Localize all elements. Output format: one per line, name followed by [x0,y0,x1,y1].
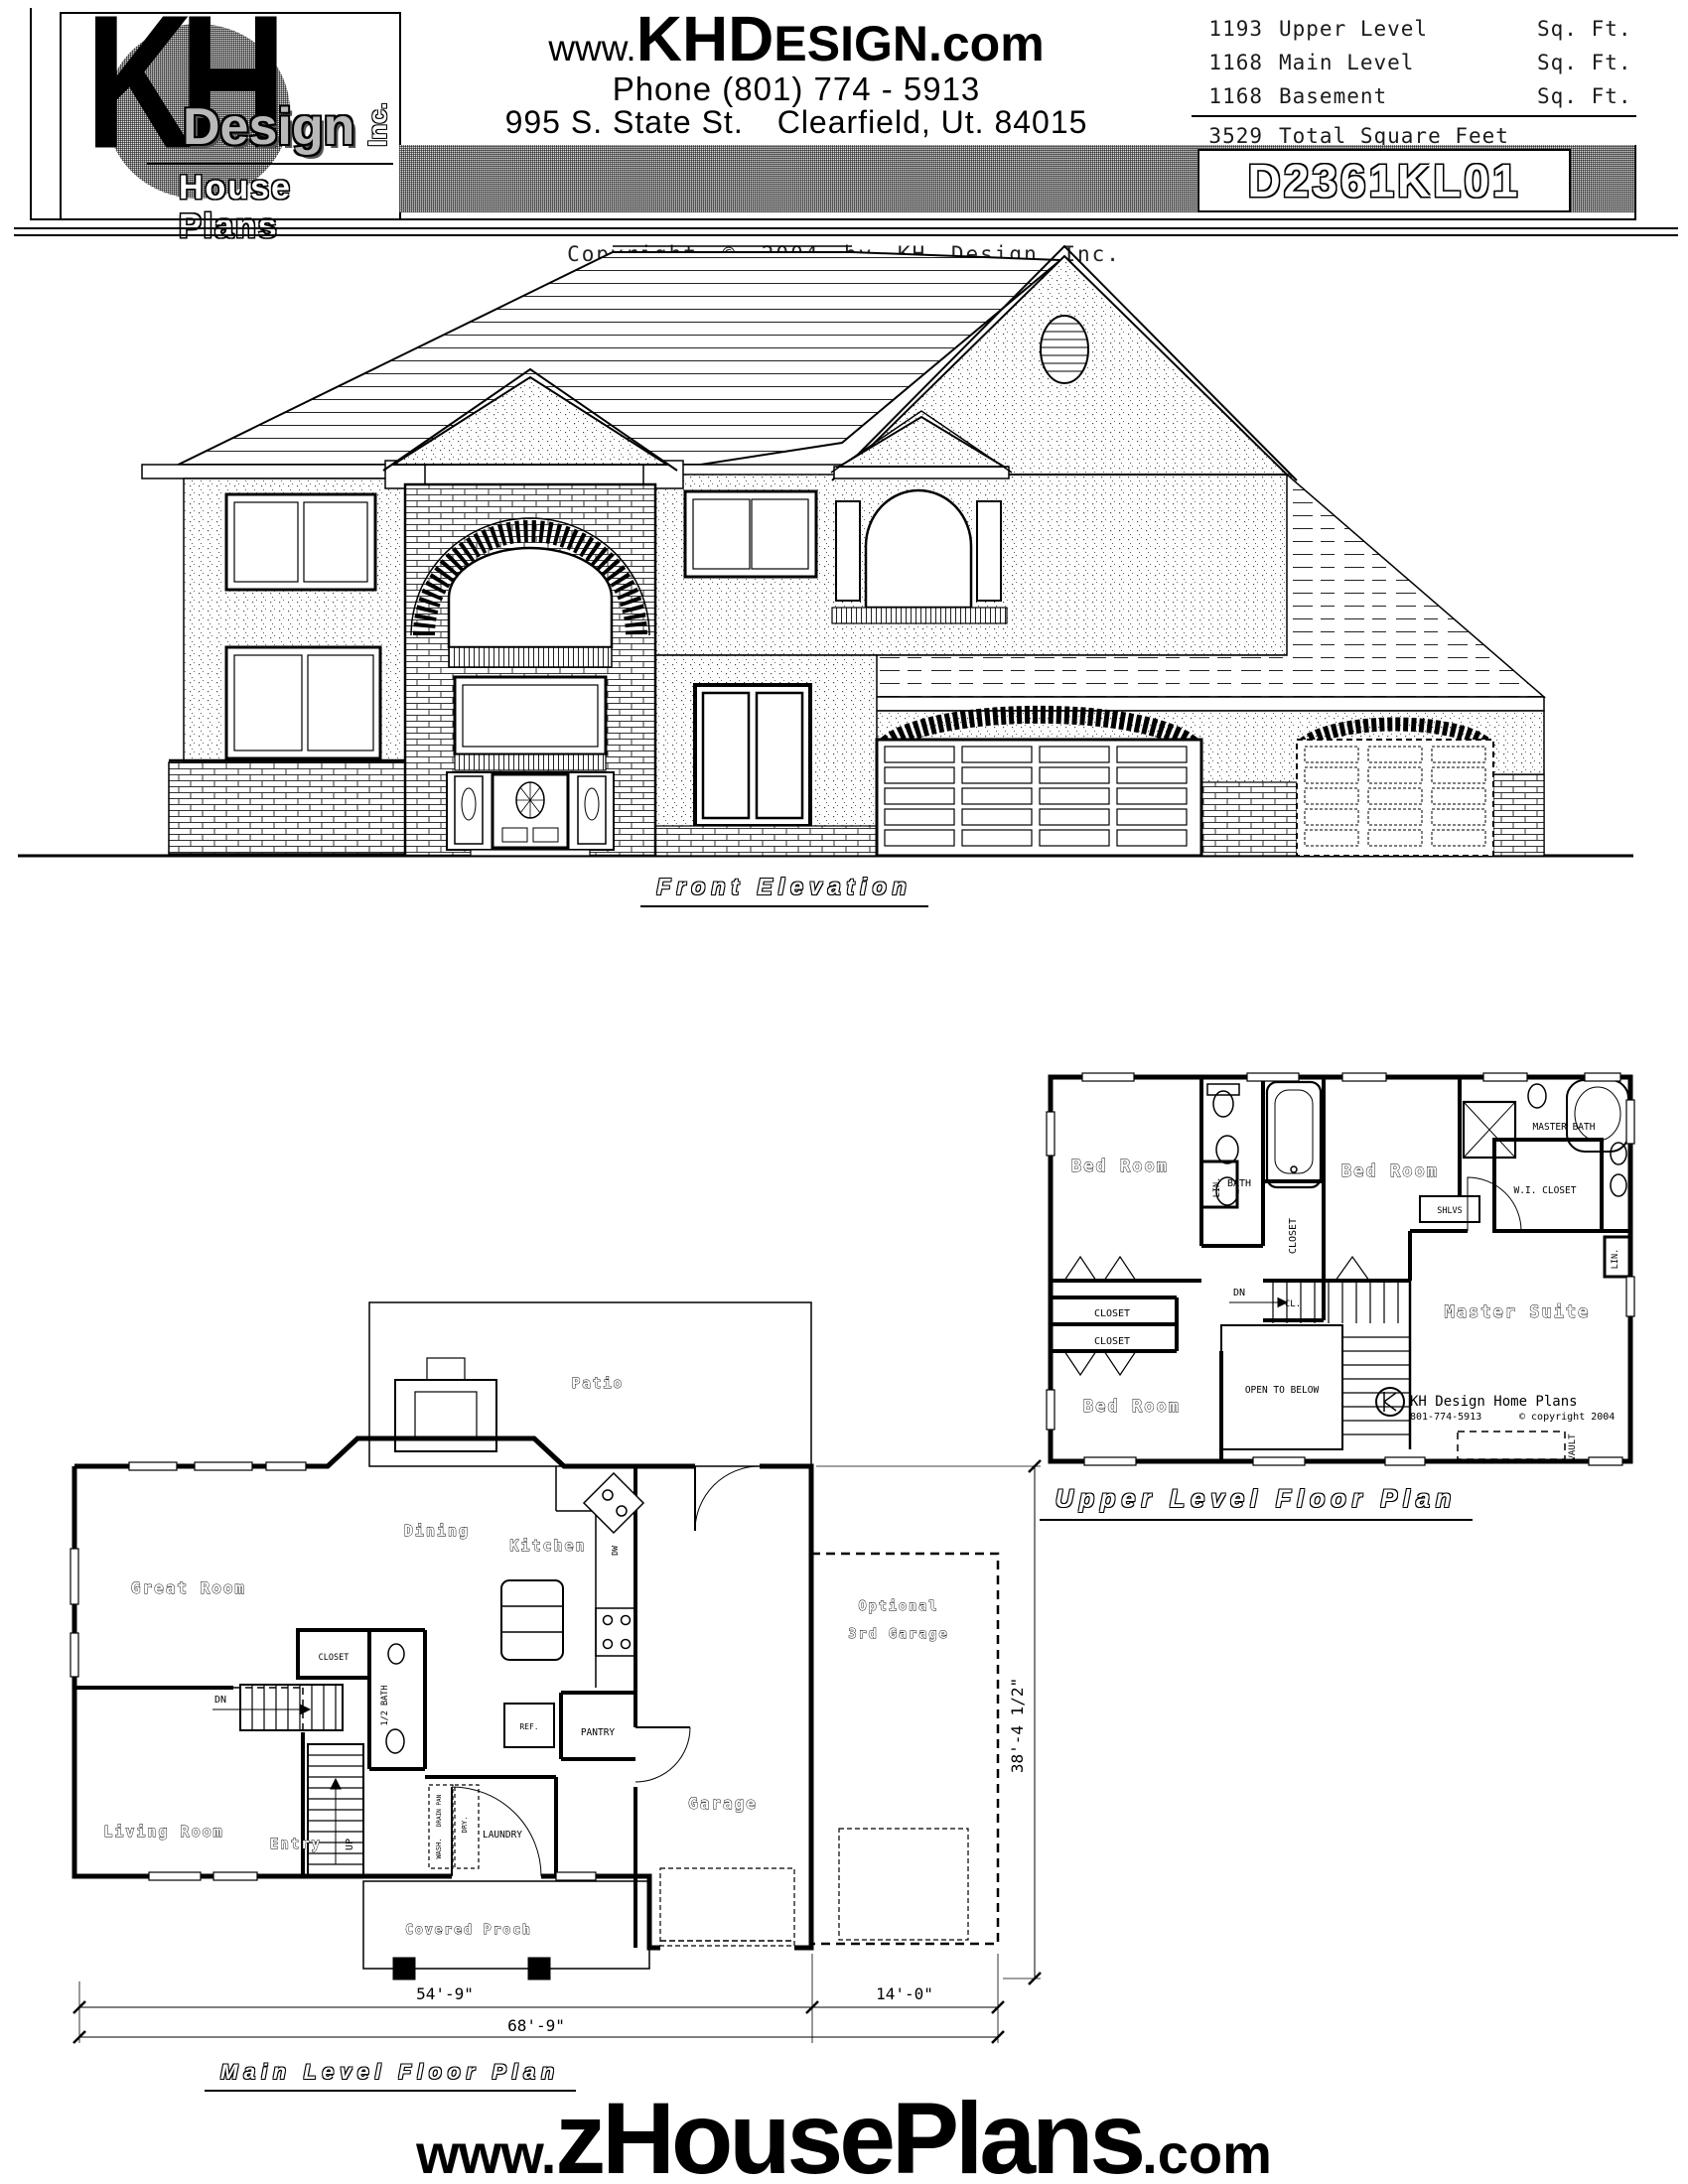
master-bath-fixtures [1420,1080,1630,1277]
room-label-cl: CL. [1285,1299,1301,1309]
footer-watermark: www.zHousePlans.com [0,2081,1688,2184]
footer-www: www. [416,2122,555,2184]
garage-door-zone [660,1868,794,1946]
arch-window [449,548,612,647]
dim-depth: 38'-4 1/2" [1008,1678,1027,1773]
room-label-master-suite: Master Suite [1445,1302,1591,1322]
room-label-shlvs: SHLVS [1437,1206,1463,1216]
porch-post [528,1958,550,1979]
open-to-below-label: OPEN TO BELOW [1245,1385,1320,1396]
upper-level-floor-plan: Bed Room Bed Room Bed Room Master Suite … [1033,1008,1638,1469]
footer-com: .com [1142,2122,1272,2184]
upper-left-window [226,494,375,590]
square-footage-table: 1193 Upper Level Sq. Ft. 1168 Main Level… [1192,12,1636,153]
elevation-caption: Front Elevation [640,874,927,907]
room-label-patio: Patio [572,1376,624,1392]
stairs-up [308,1744,363,1876]
stairs-up-label: UP [345,1839,355,1850]
room-label-optional-1: Optional [858,1598,938,1614]
label-wash: WASH. [435,1838,443,1858]
upper-caption-wrap: Upper Level Floor Plan [1033,1485,1479,1521]
logo-design-word: Design [183,97,354,157]
tower-mid-window [455,677,606,754]
label-dw: DW [611,1546,620,1556]
door-step [471,850,590,856]
header-double-rule-1 [14,227,1678,229]
room-label-bed3: Bed Room [1083,1397,1181,1417]
room-label-optional-2: 3rd Garage [848,1626,948,1642]
main-level-front-wall [655,655,877,856]
branding-logo-icon [1376,1388,1404,1416]
elevation-caption-wrap: Front Elevation [596,874,973,907]
room-label-living-room: Living Room [103,1823,223,1841]
room-label-pantry: PANTRY [581,1727,616,1738]
room-label-great-room: Great Room [131,1578,246,1597]
phone-line: Phone (801) 774 - 5913 [399,72,1194,106]
kh-design-logo: KH Design Inc. House Plans [60,12,401,220]
stairs [1221,1281,1410,1449]
header-double-rule-2 [14,234,1678,236]
room-label-wi-closet: W.I. CLOSET [1514,1185,1577,1196]
label-dry: DRY. [461,1817,469,1834]
room-label-kitchen: Kitchen [509,1537,586,1555]
plan-number: D2361KL01 [1247,154,1520,207]
brick-corner [1493,774,1544,856]
logo-inc-word: Inc. [362,102,393,147]
room-label-closet1: CLOSET [1094,1308,1130,1319]
branding-phone: 801-774-5913 [1410,1412,1481,1423]
dim-garage-width: 14'-0" [876,1984,933,2003]
label-drain-pan: DRAIN PAN [436,1794,443,1827]
room-label-closet2: CLOSET [1094,1336,1130,1347]
room-label-laundry: LAUNDRY [483,1830,522,1841]
garage-door [877,740,1201,856]
front-door [447,772,614,850]
upper-plan-caption: Upper Level Floor Plan [1040,1485,1473,1521]
table-row: 1168 Basement Sq. Ft. [1192,79,1636,113]
website-url: www.KHDESIGN.com [399,6,1194,72]
lower-left-window [226,647,380,758]
brick-pier [1201,782,1297,856]
room-label-closet: CLOSET [319,1653,350,1663]
front-elevation-drawing [10,238,1648,874]
dim-main-width: 54'-9" [416,1984,474,2003]
kitchen-island [501,1580,563,1660]
footer-site-name: zHousePlans [555,2082,1142,2184]
publisher-contact-block: www.KHDESIGN.com Phone (801) 774 - 5913 … [399,6,1194,139]
gable-vent-icon [1041,316,1088,383]
label-ref: REF. [519,1722,538,1731]
room-label-bath: BATH [1227,1178,1251,1189]
plan-number-box: D2361KL01 [1197,149,1571,212]
main-level-floor-plan: Patio Dining Kitchen Great Room Living R… [40,1266,1043,2050]
table-divider [1192,115,1636,117]
room-label-master-bath: MASTER BATH [1533,1122,1596,1133]
header-frame-bottom [30,218,1636,220]
room-label-bed1: Bed Room [1071,1157,1169,1176]
header-frame-left [30,8,32,220]
stairs-dn-label: DN [214,1695,226,1706]
optional-garage-door-zone [839,1829,968,1940]
doors [452,1466,760,1876]
kitchen-counters [501,1466,643,1747]
house-plan-sheet: KH Design Inc. House Plans www.KHDESIGN.… [0,0,1688,2184]
stairs-dn-label: DN [1233,1288,1245,1298]
header-frame-right [1634,145,1636,220]
upper-right-window [685,491,816,577]
window-marks [70,1462,596,1880]
table-row: 1168 Main Level Sq. Ft. [1192,46,1636,79]
range [596,1608,635,1656]
address-line: 995 S. State St.Clearfield, Ut. 84015 [399,106,1194,139]
exterior-walls [74,1438,811,1948]
room-label-entry: Entry [270,1837,322,1852]
table-row: 1193 Upper Level Sq. Ft. [1192,12,1636,46]
room-label-dining: Dining [404,1522,470,1540]
logo-rule [147,163,393,165]
vault-label: VAULT [1568,1433,1578,1461]
branding-name: KH Design Home Plans [1410,1394,1578,1410]
stairs-down [212,1685,343,1730]
main-level-window [695,685,810,826]
room-label-garage: Garage [688,1794,758,1813]
room-label-half-bath: 1/2 BATH [380,1686,390,1726]
branding-copyright: © copyright 2004 [1519,1412,1615,1423]
optional-garage-door [1297,740,1493,856]
vault-outline [1458,1432,1565,1459]
dim-total-width: 68'-9" [507,2016,565,2035]
room-label-covered-porch: Covered Proch [405,1923,532,1938]
room-label-bed2: Bed Room [1341,1161,1439,1181]
room-label-lin2: LIN. [1611,1249,1620,1269]
porch-post [393,1958,415,1979]
room-label-closet-v: CLOSET [1288,1218,1299,1254]
room-label-lin1: LIN. [1212,1177,1222,1197]
